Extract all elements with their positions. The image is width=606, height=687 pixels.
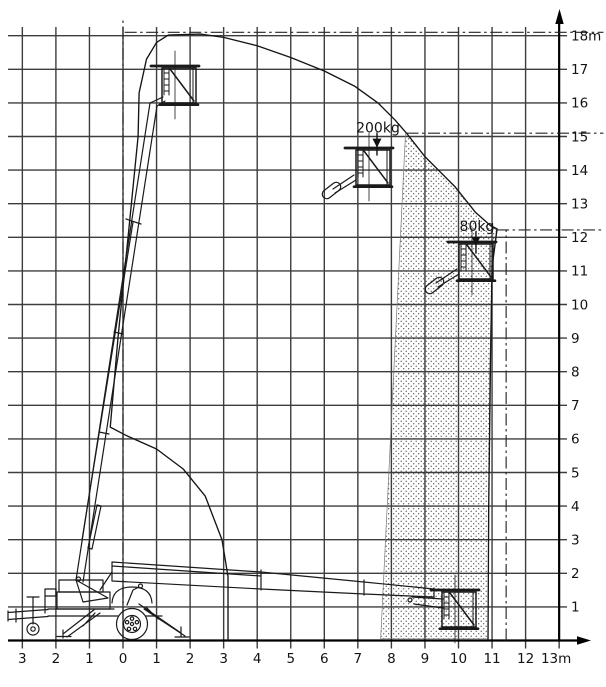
load-limit-label: 80kg	[460, 219, 495, 235]
y-axis-label: 12	[571, 230, 588, 246]
x-axis-label: 7	[354, 651, 363, 667]
x-axis-arrow	[577, 636, 591, 644]
reference-lines	[123, 17, 603, 640]
y-axis-label: 16	[571, 96, 588, 112]
lever-knob	[139, 584, 143, 588]
jockey-wheel	[27, 623, 39, 635]
y-axis-label: 6	[571, 432, 580, 448]
y-axis-label: 5	[571, 465, 580, 481]
machine-drawing	[8, 97, 434, 640]
x-axis-label: 3	[18, 651, 27, 667]
y-axis-label: 9	[571, 331, 580, 347]
basket-200kg-position	[345, 133, 393, 201]
load-limit-label: 200kg	[356, 120, 400, 136]
x-axis-label: 6	[320, 651, 329, 667]
x-axis-label: 13m	[541, 651, 571, 667]
wheel-fender	[112, 587, 152, 603]
y-axis-label: 14	[571, 163, 588, 179]
x-axis-label: 5	[286, 651, 295, 667]
x-axis-label: 11	[483, 651, 500, 667]
x-axis-label: 1	[85, 651, 94, 667]
restricted-zone	[381, 133, 497, 639]
towbar	[8, 609, 48, 622]
y-axis-label: 11	[571, 264, 588, 280]
axis-labels: 321012345678910111213m18m171615141312111…	[18, 29, 601, 668]
restricted-zone-shading	[381, 133, 497, 639]
y-axis-label: 3	[571, 533, 580, 549]
x-axis-label: 0	[119, 651, 128, 667]
y-axis-label: 7	[571, 398, 580, 414]
y-axis-arrow	[555, 9, 563, 24]
road-wheel	[117, 609, 148, 640]
y-axis-label: 17	[571, 62, 588, 78]
y-axis-label: 2	[571, 566, 580, 582]
y-axis-label: 1	[571, 600, 580, 616]
y-axis-label: 4	[571, 499, 580, 515]
x-axis-label: 1	[152, 651, 161, 667]
x-axis-label: 8	[387, 651, 396, 667]
x-axis-label: 12	[517, 651, 534, 667]
y-axis-label: 15	[571, 129, 588, 145]
y-axis-label: 8	[571, 365, 580, 381]
engine-cover	[59, 580, 103, 592]
x-axis-label: 4	[253, 651, 262, 667]
x-axis-label: 2	[52, 651, 61, 667]
x-axis-label: 3	[219, 651, 228, 667]
control-lever	[127, 587, 139, 605]
x-axis-label: 2	[186, 651, 195, 667]
y-axis-label: 13	[571, 197, 588, 213]
basket-top-position	[151, 51, 199, 119]
jockey-wheel-hub	[31, 627, 35, 631]
y-axis-label: 18m	[571, 29, 601, 45]
y-axis-label: 10	[571, 297, 588, 313]
x-axis-label: 10	[450, 651, 467, 667]
axes	[8, 9, 591, 645]
load-arrow-head	[372, 139, 381, 148]
working-envelope-diagram: 200kg80kg 321012345678910111213m18m17161…	[0, 0, 606, 687]
x-axis-label: 9	[421, 651, 430, 667]
